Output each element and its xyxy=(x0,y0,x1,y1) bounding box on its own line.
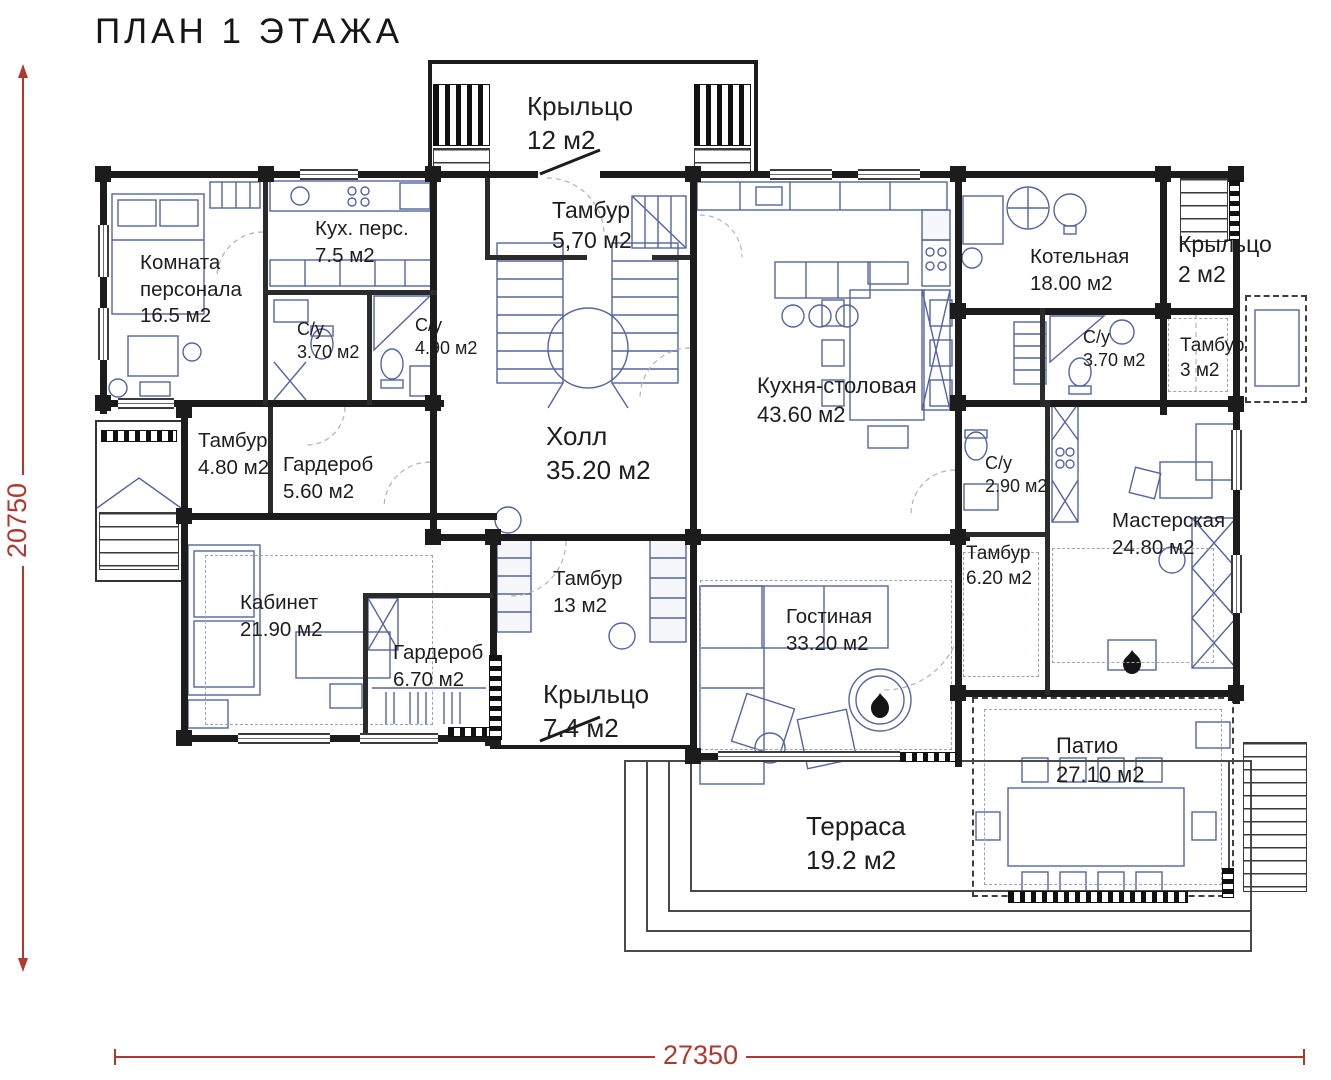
window xyxy=(300,169,358,180)
room-area: 43.60 м2 xyxy=(757,401,917,430)
room-name: Гостиная xyxy=(786,605,872,628)
kitchenette-column xyxy=(1052,404,1078,522)
log-joint xyxy=(425,529,441,545)
plan-title: ПЛАН 1 ЭТАЖА xyxy=(95,12,403,52)
room-area: 27.10 м2 xyxy=(1056,761,1145,790)
wall-segment xyxy=(100,171,107,414)
porch-railing xyxy=(428,60,432,178)
wall-segment xyxy=(955,690,1240,697)
room-name: Крыльцо xyxy=(527,91,633,121)
room-label-boiler: Котельная 18.00 м2 xyxy=(1030,244,1129,297)
room-label-porch-2: Крыльцо 2 м2 xyxy=(1178,230,1272,290)
patio-edge-hatch xyxy=(1008,891,1188,903)
log-joint xyxy=(685,529,701,545)
room-name: Тамбур xyxy=(553,567,623,590)
log-joint xyxy=(950,395,966,411)
dimension-width-value: 27350 xyxy=(655,1040,746,1071)
room-label-staff-kitchen: Кух. перс. 7.5 м2 xyxy=(315,216,409,269)
room-area: 2 м2 xyxy=(1178,260,1272,290)
log-joint xyxy=(950,303,966,319)
partition-wall xyxy=(363,593,493,598)
left-porch-steps xyxy=(99,512,179,570)
room-name: Тамбур xyxy=(1180,335,1245,356)
room-name: Комната персонала xyxy=(140,251,242,301)
porch-edge xyxy=(490,745,697,749)
wall-segment xyxy=(181,407,188,742)
dimension-height-value: 20750 xyxy=(2,475,33,566)
partition-wall xyxy=(1045,400,1050,695)
window xyxy=(118,398,174,409)
room-label-hall: Холл 35.20 м2 xyxy=(546,420,651,488)
log-joint xyxy=(425,166,441,182)
right-garden-steps xyxy=(1243,742,1307,892)
wall-segment xyxy=(437,171,538,178)
log-joint xyxy=(176,508,192,524)
room-name: Кухня-столовая xyxy=(757,373,917,398)
room-name: С/у xyxy=(297,319,324,339)
room-label-wc-290: С/у 2.90 м2 xyxy=(985,452,1047,499)
room-name: Котельная xyxy=(1030,245,1129,268)
arrow-down-icon xyxy=(18,958,28,972)
partition-wall xyxy=(1040,308,1045,407)
room-label-porch-74: Крыльцо 7.4 м2 xyxy=(543,678,649,746)
room-label-wc-370-left: С/у 3.70 м2 xyxy=(297,318,359,365)
dimension-tick xyxy=(1303,1049,1305,1065)
room-area: 4.90 м2 xyxy=(415,337,477,360)
room-area: 16.5 м2 xyxy=(140,303,298,330)
log-joint xyxy=(176,402,192,418)
room-area: 5.60 м2 xyxy=(283,479,373,506)
log-joint xyxy=(950,529,966,545)
room-area: 12 м2 xyxy=(527,124,633,158)
log-joint xyxy=(258,166,274,182)
window xyxy=(360,733,438,744)
room-area: 24.80 м2 xyxy=(1112,535,1225,562)
porch-railing xyxy=(754,60,758,178)
room-label-vestibule-13: Тамбур 13 м2 xyxy=(553,566,623,619)
room-label-vestibule-570: Тамбур 5,70 м2 xyxy=(552,196,632,256)
room-label-workshop: Мастерская 24.80 м2 xyxy=(1112,508,1225,561)
room-name: Гардероб xyxy=(283,453,373,476)
window xyxy=(718,751,900,762)
room-area: 6.70 м2 xyxy=(393,667,483,694)
log-joint xyxy=(176,730,192,746)
room-name: Тамбур xyxy=(966,543,1031,564)
room-name: Патио xyxy=(1056,733,1118,758)
room-label-living-room: Гостиная 33.20 м2 xyxy=(786,604,872,657)
room-label-terrace: Терраса 19.2 м2 xyxy=(806,810,906,878)
log-joint xyxy=(485,529,501,545)
room-area: 3.70 м2 xyxy=(297,341,359,364)
partition-wall xyxy=(367,290,372,405)
side-deck-outline xyxy=(1245,295,1307,403)
wall-segment xyxy=(955,171,962,767)
floor-plan-canvas: ПЛАН 1 ЭТАЖА xyxy=(0,0,1331,1080)
room-label-kitchen-dining: Кухня-столовая 43.60 м2 xyxy=(757,372,917,429)
room-area: 7.5 м2 xyxy=(315,243,409,270)
log-joint xyxy=(1155,303,1171,319)
room-label-wc-490: С/у 4.90 м2 xyxy=(415,314,477,361)
room-name: Кабинет xyxy=(240,591,318,614)
partition-wall xyxy=(652,255,690,260)
log-joint xyxy=(1228,396,1244,412)
log-joint xyxy=(685,748,701,764)
room-name: С/у xyxy=(1083,327,1110,347)
window xyxy=(1231,555,1242,613)
log-joint xyxy=(1228,685,1244,701)
log-joint xyxy=(950,166,966,182)
log-joint xyxy=(425,395,441,411)
arrow-up-icon xyxy=(18,64,28,78)
room-label-vestibule-480: Тамбур 4.80 м2 xyxy=(198,428,269,481)
log-joint xyxy=(95,395,111,411)
log-joint xyxy=(95,166,111,182)
log-joint xyxy=(950,685,966,701)
room-label-wardrobe-670: Гардероб 6.70 м2 xyxy=(393,640,483,693)
room-area: 4.80 м2 xyxy=(198,455,269,482)
room-name: Крыльцо xyxy=(543,679,649,709)
room-area: 5,70 м2 xyxy=(552,226,632,256)
log-joint xyxy=(685,166,701,182)
room-label-staff-room: Комната персонала 16.5 м2 xyxy=(140,250,298,330)
room-name: Мастерская xyxy=(1112,509,1225,532)
room-area: 7.4 м2 xyxy=(543,712,649,746)
room-name: Терраса xyxy=(806,811,906,841)
room-name: Крыльцо xyxy=(1178,231,1272,257)
partition-wall xyxy=(363,593,368,735)
room-area: 21.90 м2 xyxy=(240,617,323,644)
dimension-tick xyxy=(114,1049,116,1065)
window xyxy=(98,308,109,360)
room-name: Кух. перс. xyxy=(315,217,409,240)
terrace-step-4 xyxy=(624,760,1252,952)
room-name: Тамбур xyxy=(198,429,268,452)
partition-wall xyxy=(485,178,490,260)
room-area: 35.20 м2 xyxy=(546,454,651,488)
stair-hatch-bar xyxy=(489,655,502,740)
room-name: Холл xyxy=(546,421,607,451)
log-joint xyxy=(1155,166,1171,182)
room-name: Гардероб xyxy=(393,641,483,664)
wall-segment xyxy=(690,534,697,760)
room-label-office: Кабинет 21.90 м2 xyxy=(240,590,323,643)
patio-corner-hatch xyxy=(1222,868,1234,898)
left-porch-hatch xyxy=(101,430,177,442)
porch-stair-hatch xyxy=(694,84,751,146)
room-area: 33.20 м2 xyxy=(786,631,872,658)
room-area: 3 м2 xyxy=(1180,359,1245,384)
window xyxy=(238,733,330,744)
threshold-hatch xyxy=(900,752,956,762)
room-name: Тамбур xyxy=(552,197,630,223)
window xyxy=(98,225,109,277)
room-label-wardrobe-560: Гардероб 5.60 м2 xyxy=(283,452,373,505)
room-label-vestibule-3: Тамбур 3 м2 xyxy=(1180,334,1245,383)
room-label-wc-370-right: С/у 3.70 м2 xyxy=(1083,326,1145,373)
room-area: 6.20 м2 xyxy=(966,567,1032,592)
porch-stair-hatch xyxy=(433,84,490,146)
wall-segment xyxy=(955,400,1240,407)
room-label-porch-main: Крыльцо 12 м2 xyxy=(527,90,633,158)
partition-wall xyxy=(955,532,1047,537)
wall-segment xyxy=(181,513,497,520)
room-area: 3.70 м2 xyxy=(1083,349,1145,372)
porch-railing xyxy=(428,60,758,64)
window xyxy=(1231,430,1242,490)
room-name: С/у xyxy=(415,315,442,335)
room-label-patio: Патио 27.10 м2 xyxy=(1056,732,1145,789)
wall-segment xyxy=(955,308,1240,315)
wall-segment xyxy=(1160,171,1167,415)
room-area: 19.2 м2 xyxy=(806,844,906,878)
room-label-vestibule-620: Тамбур 6.20 м2 xyxy=(966,542,1032,591)
wall-segment xyxy=(690,171,697,541)
room-area: 18.00 м2 xyxy=(1030,271,1129,298)
room-area: 13 м2 xyxy=(553,593,623,620)
grand-staircase xyxy=(497,243,678,408)
window xyxy=(770,169,832,180)
room-name: С/у xyxy=(985,453,1012,473)
workshop-rug xyxy=(1052,548,1214,663)
room-area: 2.90 м2 xyxy=(985,475,1047,498)
window xyxy=(858,169,920,180)
vestibule-stair xyxy=(632,196,686,248)
